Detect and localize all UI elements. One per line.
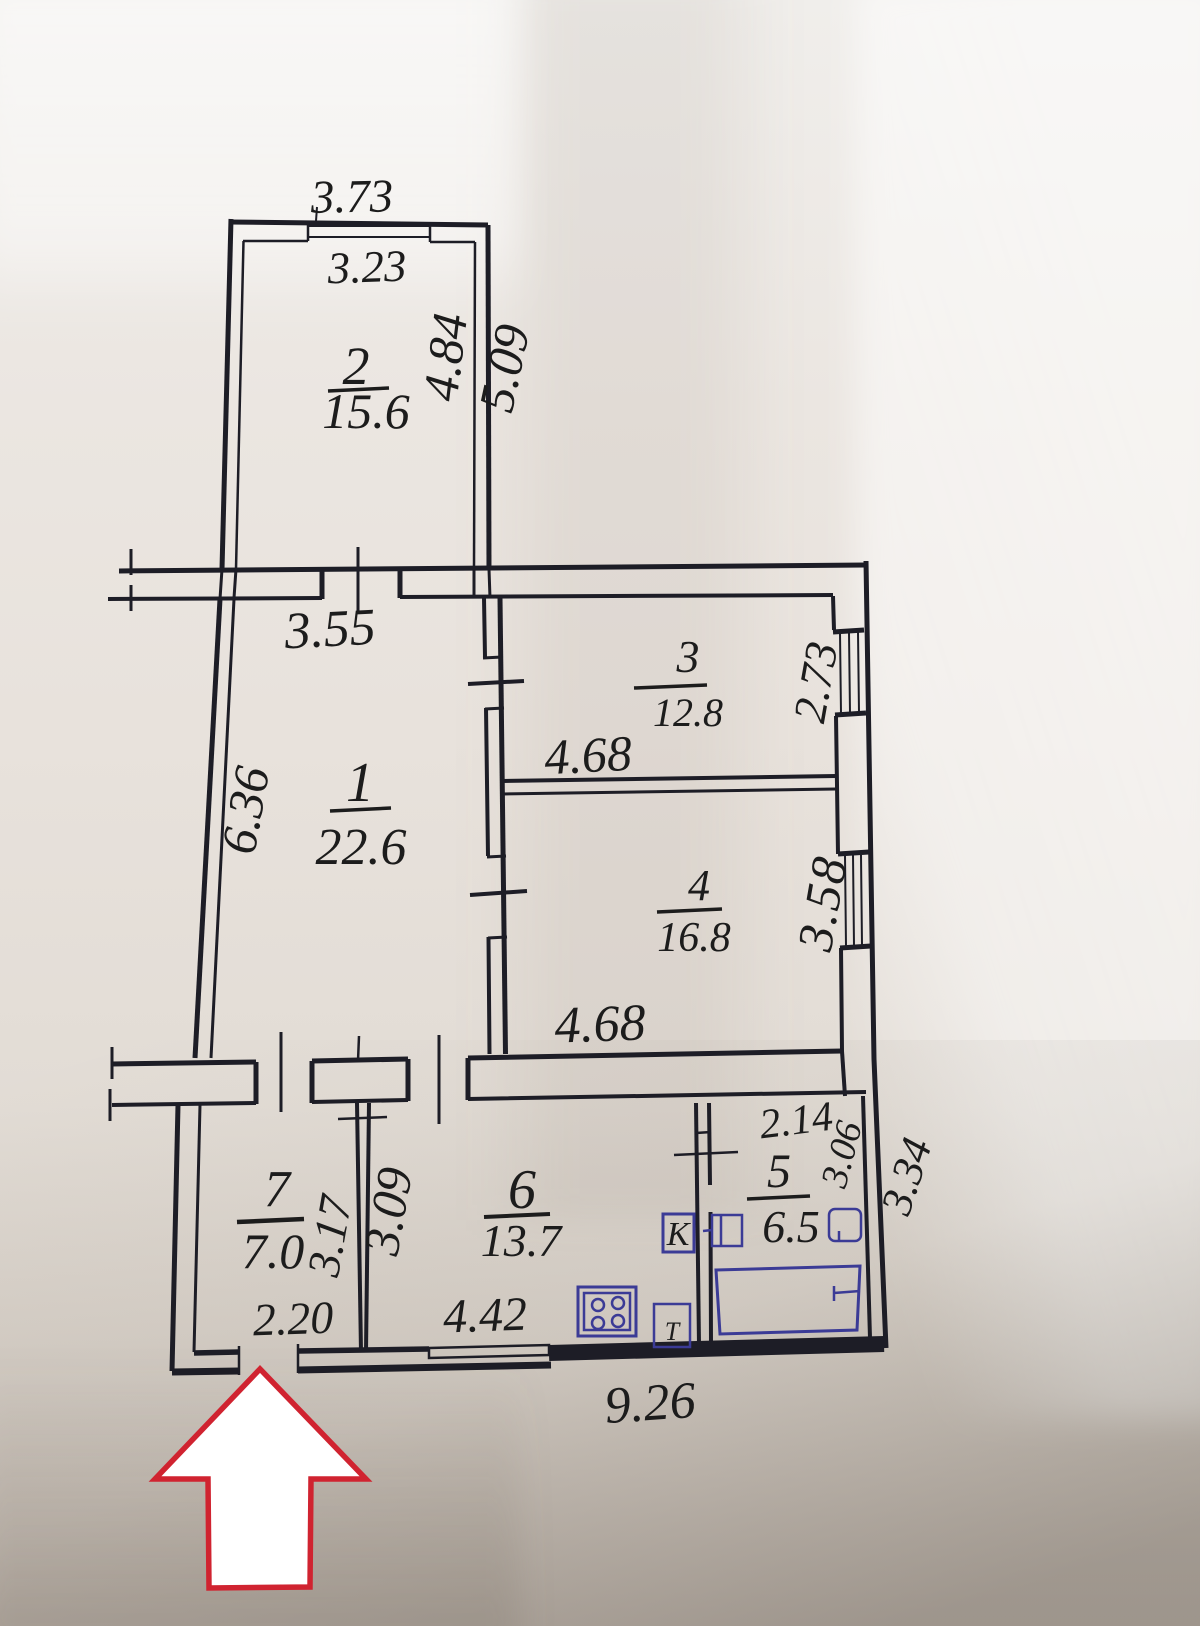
svg-text:16.8: 16.8 (657, 915, 731, 961)
svg-text:7.0: 7.0 (242, 1223, 305, 1279)
svg-text:9.26: 9.26 (603, 1372, 698, 1435)
svg-text:4.42: 4.42 (442, 1288, 528, 1344)
svg-text:3: 3 (676, 631, 700, 682)
svg-text:4: 4 (688, 861, 710, 910)
svg-text:4.84: 4.84 (412, 310, 478, 404)
svg-text:22.6: 22.6 (316, 819, 407, 876)
svg-text:К: К (666, 1216, 692, 1253)
svg-text:12.8: 12.8 (653, 690, 723, 735)
svg-text:3.23: 3.23 (326, 241, 407, 294)
svg-text:3.73: 3.73 (309, 170, 393, 223)
svg-text:4.68: 4.68 (554, 994, 647, 1054)
svg-text:Т: Т (665, 1317, 681, 1346)
svg-text:1: 1 (346, 752, 374, 814)
svg-text:7: 7 (264, 1161, 292, 1218)
svg-text:5: 5 (767, 1145, 791, 1198)
svg-text:3.55: 3.55 (282, 599, 377, 661)
svg-text:6.5: 6.5 (762, 1201, 820, 1252)
svg-text:15.6: 15.6 (322, 383, 410, 439)
svg-text:13.7: 13.7 (481, 1215, 564, 1266)
svg-text:2.20: 2.20 (252, 1292, 334, 1346)
svg-text:6: 6 (508, 1159, 536, 1221)
svg-text:4.68: 4.68 (543, 725, 633, 786)
